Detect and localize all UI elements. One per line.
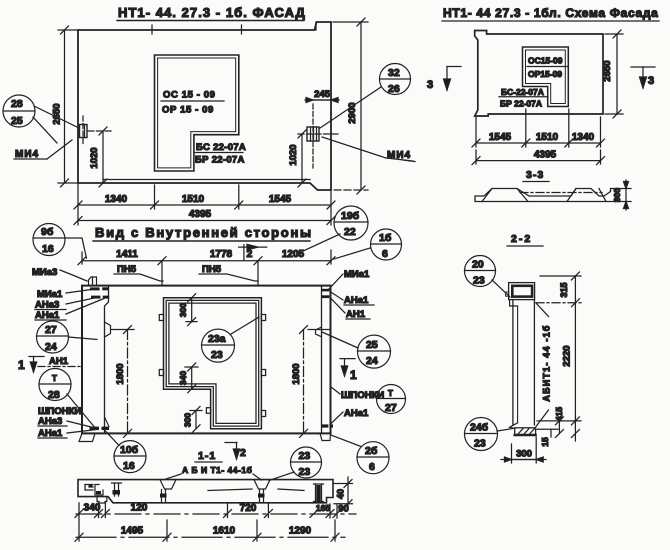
svg-text:2: 2	[247, 248, 253, 260]
svg-text:1411: 1411	[116, 249, 138, 260]
svg-text:1290: 1290	[289, 526, 312, 537]
svg-text:2650: 2650	[52, 103, 63, 124]
svg-text:1545: 1545	[489, 132, 512, 143]
svg-text:120: 120	[131, 503, 148, 514]
svg-text:АНа1: АНа1	[344, 295, 369, 306]
svg-text:2-2: 2-2	[511, 233, 532, 245]
svg-text:90: 90	[338, 504, 349, 515]
svg-text:1340: 1340	[105, 194, 128, 205]
svg-text:23: 23	[211, 349, 223, 361]
svg-text:1545: 1545	[269, 194, 292, 205]
svg-text:24: 24	[45, 341, 57, 353]
svg-text:АНа3: АНа3	[35, 300, 59, 311]
svg-text:24б: 24б	[470, 422, 489, 434]
svg-text:1020: 1020	[89, 147, 100, 168]
svg-text:АБИТ1- 44 -1б: АБИТ1- 44 -1б	[542, 324, 552, 401]
svg-text:1495: 1495	[121, 526, 144, 537]
svg-text:А Б И Т1- 44-1б: А Б И Т1- 44-1б	[182, 465, 252, 475]
svg-text:16: 16	[123, 460, 135, 472]
svg-text:20: 20	[472, 259, 484, 271]
svg-text:23: 23	[299, 450, 311, 462]
svg-text:3-3: 3-3	[526, 169, 544, 181]
svg-text:40: 40	[336, 489, 346, 499]
svg-text:БС-22-07А: БС-22-07А	[501, 87, 544, 97]
svg-text:27: 27	[385, 402, 397, 414]
svg-text:25: 25	[366, 339, 378, 351]
svg-text:НТ1- 44 27.3 - 1бл. Схема Фаса: НТ1- 44 27.3 - 1бл. Схема Фасада	[443, 6, 659, 20]
svg-text:1800: 1800	[115, 363, 126, 384]
svg-text:22: 22	[344, 226, 356, 238]
svg-text:165: 165	[316, 503, 330, 513]
svg-text:1б: 1б	[379, 232, 392, 244]
svg-text:1610: 1610	[213, 526, 236, 537]
svg-text:ОР15-09: ОР15-09	[528, 69, 562, 79]
svg-text:1510: 1510	[182, 194, 205, 205]
svg-text:АН1: АН1	[49, 356, 69, 367]
svg-text:4395: 4395	[534, 150, 557, 161]
svg-text:АНа1: АНа1	[344, 408, 369, 419]
svg-text:300: 300	[612, 188, 622, 202]
svg-text:БР 22-07А: БР 22-07А	[195, 155, 245, 166]
svg-text:15: 15	[540, 437, 550, 447]
svg-text:1778: 1778	[210, 249, 233, 260]
svg-text:300: 300	[516, 449, 532, 460]
svg-text:1: 1	[350, 368, 357, 382]
svg-text:27: 27	[45, 324, 57, 336]
svg-text:МИа1: МИа1	[344, 269, 370, 280]
svg-text:Вид с Внутренней стороны: Вид с Внутренней стороны	[95, 225, 313, 240]
svg-text:Т: Т	[388, 389, 393, 398]
svg-text:23: 23	[299, 466, 311, 478]
svg-text:315: 315	[559, 282, 569, 297]
svg-text:340: 340	[178, 371, 188, 385]
svg-text:2220: 2220	[562, 345, 573, 366]
svg-text:ПН5: ПН5	[202, 264, 222, 275]
svg-text:ПН5: ПН5	[117, 264, 137, 275]
svg-text:1205: 1205	[282, 249, 305, 260]
svg-text:340: 340	[84, 503, 101, 514]
svg-text:24: 24	[366, 355, 378, 367]
svg-text:1-1: 1-1	[198, 450, 216, 462]
svg-text:6: 6	[369, 461, 375, 473]
svg-text:32: 32	[388, 67, 400, 79]
svg-text:БР 22-07А: БР 22-07А	[500, 99, 542, 109]
svg-text:ОР 15 - 09: ОР 15 - 09	[162, 105, 214, 116]
svg-text:25: 25	[11, 115, 23, 127]
svg-text:4395: 4395	[189, 209, 212, 220]
svg-text:1510: 1510	[536, 132, 559, 143]
svg-text:245: 245	[314, 89, 331, 100]
svg-text:3: 3	[648, 75, 654, 87]
svg-text:6: 6	[382, 248, 388, 260]
svg-text:БС 22-07А: БС 22-07А	[196, 142, 246, 153]
svg-text:АНа1: АНа1	[38, 428, 63, 439]
svg-text:АНа3: АНа3	[38, 416, 62, 427]
svg-text:23а: 23а	[208, 333, 226, 345]
svg-text:19б: 19б	[341, 210, 360, 222]
svg-text:28: 28	[48, 389, 60, 401]
svg-text:300: 300	[183, 413, 193, 427]
svg-text:415: 415	[554, 407, 564, 421]
svg-text:28: 28	[11, 98, 23, 110]
svg-text:3: 3	[427, 79, 433, 91]
svg-text:АН1: АН1	[346, 309, 366, 320]
svg-text:1800: 1800	[291, 363, 302, 384]
svg-text:МИ4: МИ4	[15, 149, 39, 160]
svg-text:2650: 2650	[602, 60, 613, 81]
svg-text:НТ1- 44. 27.3 - 1б. ФАСАД: НТ1- 44. 27.3 - 1б. ФАСАД	[118, 5, 306, 20]
svg-text:Т: Т	[52, 374, 57, 383]
svg-text:300: 300	[178, 303, 188, 317]
svg-text:720: 720	[240, 503, 257, 514]
svg-text:1020: 1020	[288, 144, 299, 165]
svg-text:23: 23	[473, 275, 485, 287]
svg-text:1: 1	[18, 358, 25, 372]
svg-text:23: 23	[474, 438, 486, 450]
svg-text:МИа3: МИа3	[32, 267, 57, 278]
svg-text:9б: 9б	[41, 226, 54, 238]
svg-text:ОС15-09: ОС15-09	[528, 56, 563, 66]
svg-text:ОС 15 - 09: ОС 15 - 09	[163, 90, 215, 101]
svg-text:1340: 1340	[572, 132, 595, 143]
svg-text:2900: 2900	[347, 102, 358, 123]
svg-text:2: 2	[240, 447, 246, 459]
svg-text:26: 26	[388, 83, 400, 95]
svg-text:АНа1: АНа1	[35, 310, 60, 321]
svg-text:МИа1: МИа1	[37, 289, 63, 300]
svg-text:16: 16	[42, 243, 54, 255]
svg-text:2б: 2б	[365, 445, 378, 457]
svg-text:10б: 10б	[120, 444, 139, 456]
